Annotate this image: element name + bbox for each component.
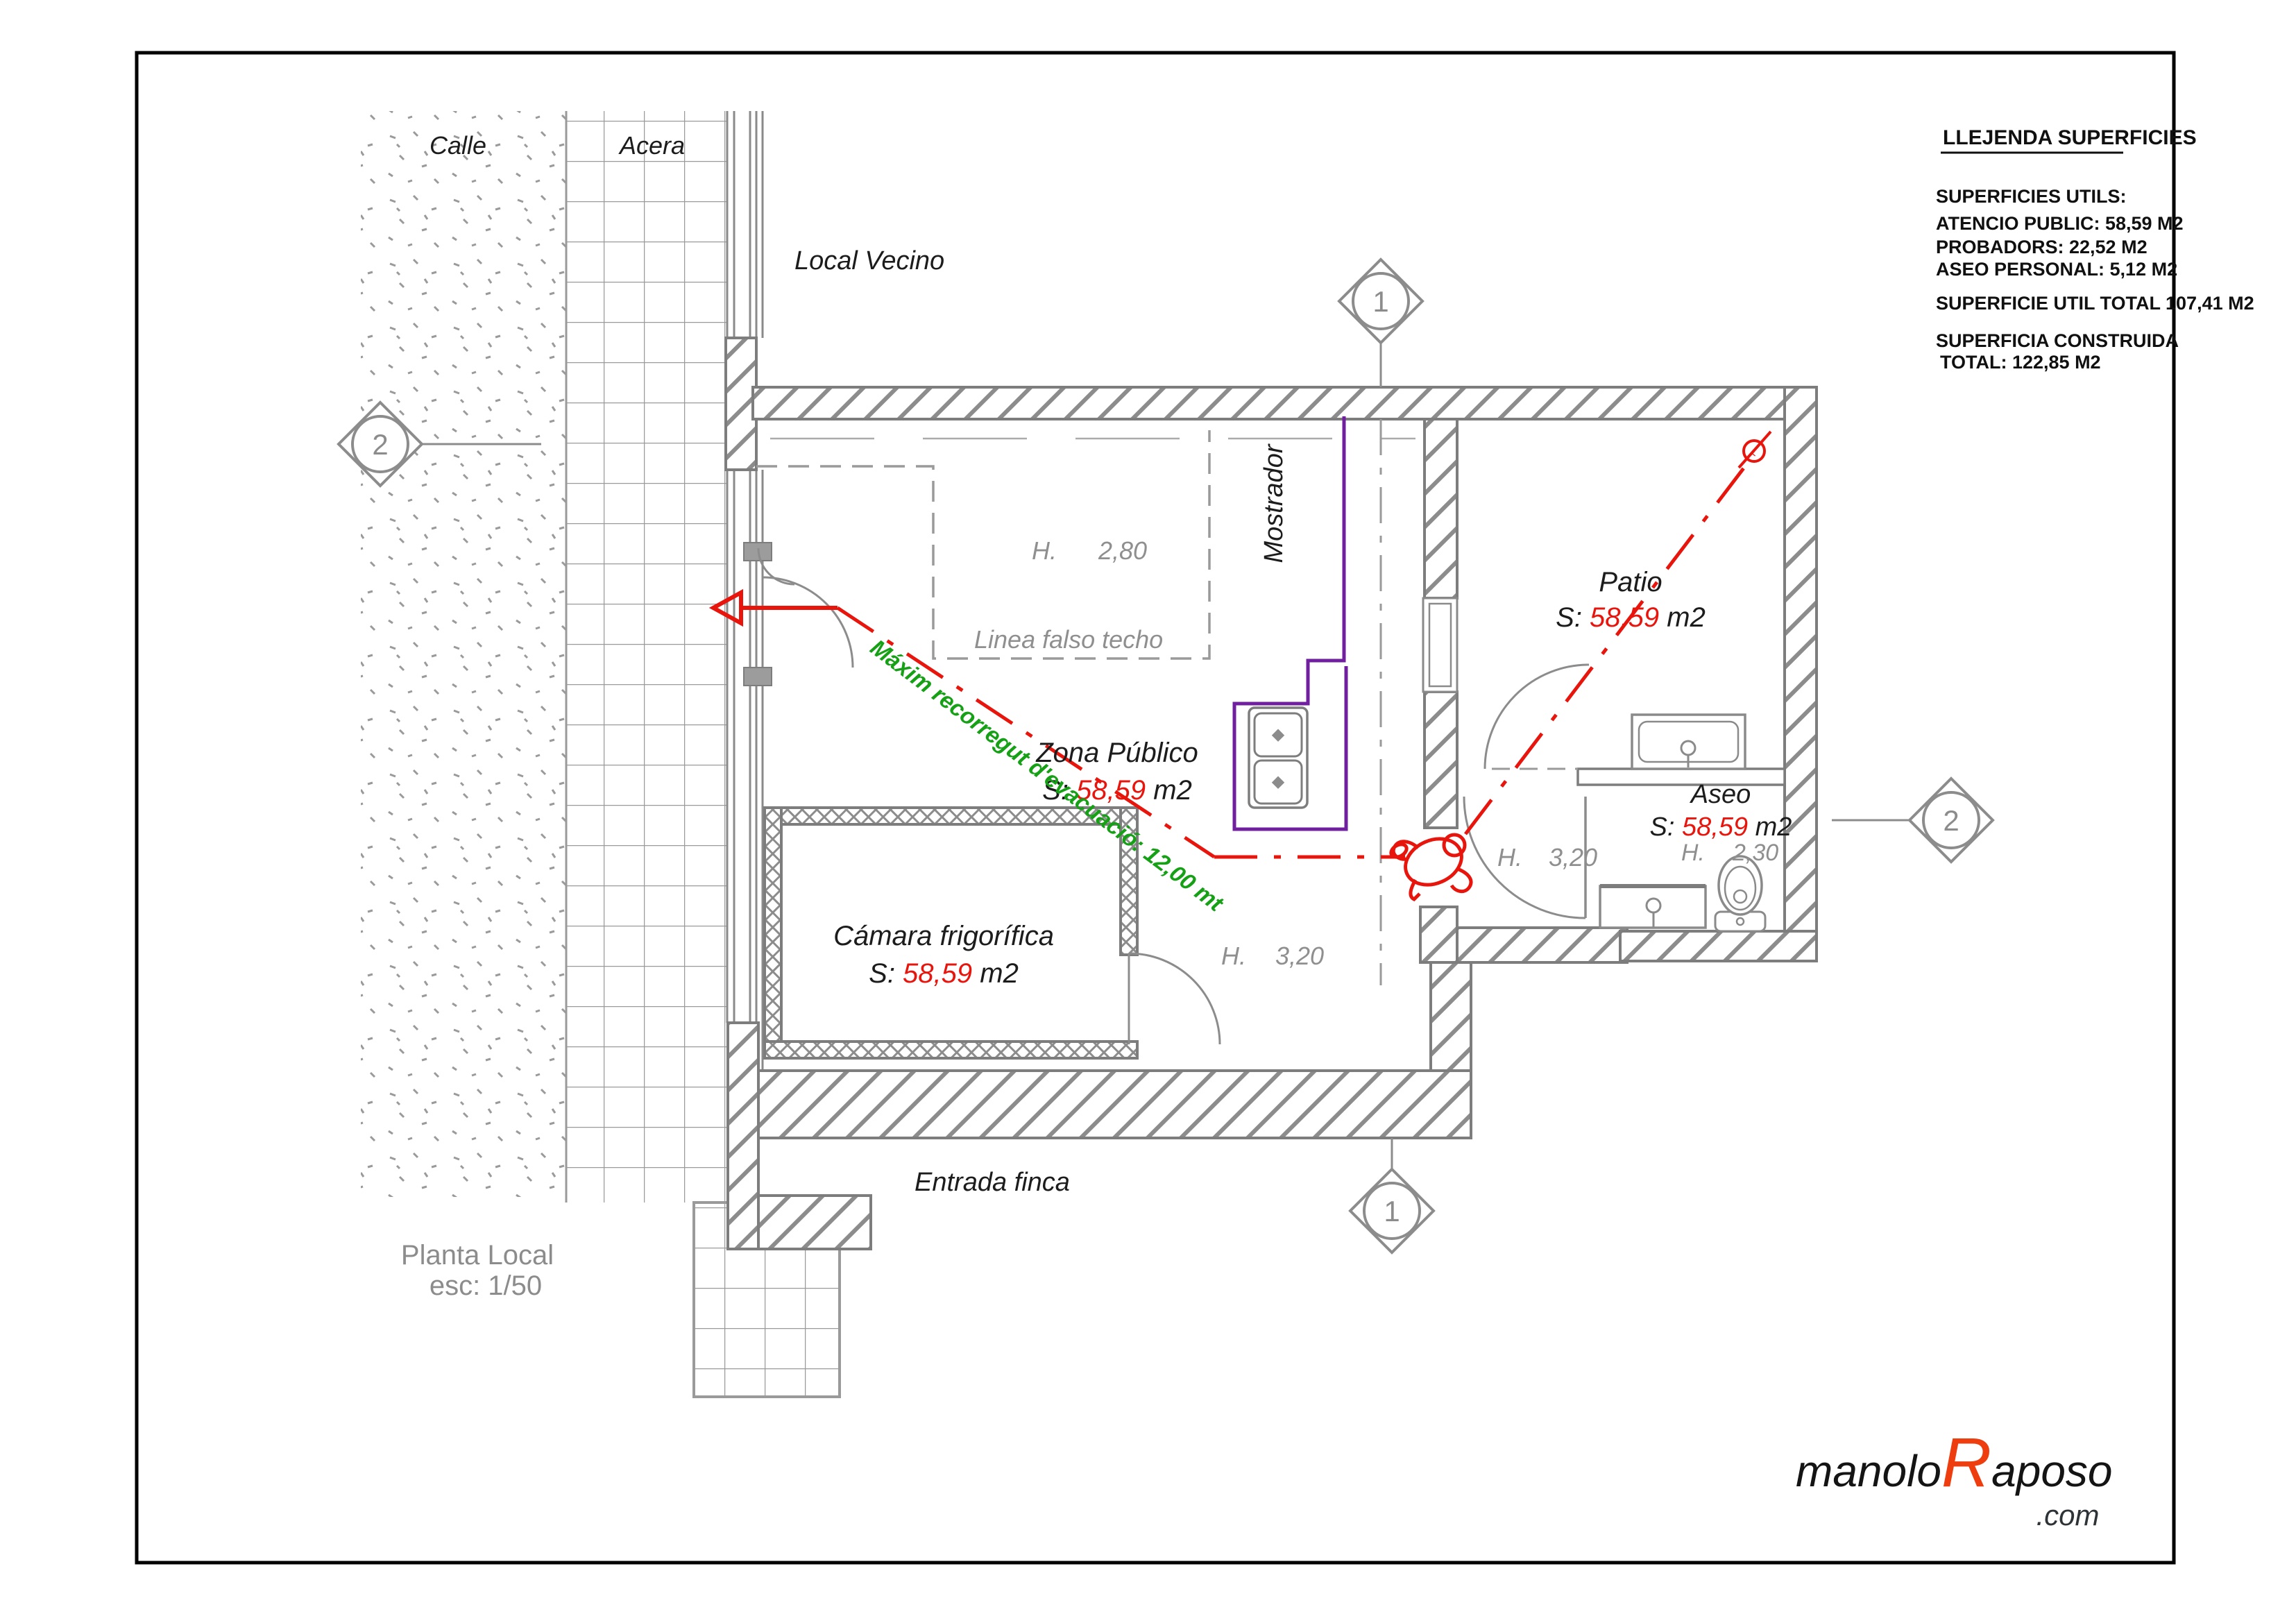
- section-marker-number: 2: [1943, 804, 1959, 837]
- legend-superficies-utils: SUPERFICIES UTILS:: [1936, 186, 2127, 207]
- section-marker-number: 1: [1372, 285, 1388, 318]
- room-area-aseo: S: 58,59 m2: [1650, 813, 1792, 842]
- door-hinge-block: [744, 668, 772, 686]
- label-height-falso-techo: H.: [1032, 536, 1057, 565]
- aseo-top-wall: [1578, 769, 1785, 785]
- section-marker-number: 2: [372, 428, 388, 461]
- area-prefix: S:: [869, 958, 903, 989]
- label-height-pasillo: H.: [1497, 843, 1522, 872]
- wall-shop-bottom: [758, 1071, 1471, 1138]
- label-height-zona: H.: [1221, 942, 1246, 970]
- room-name-patio: Patio: [1599, 567, 1662, 597]
- room-area-camara: S: 58,59 m2: [869, 958, 1019, 989]
- legend-aseo-personal: ASEO PERSONAL: 5,12 M2: [1936, 259, 2177, 280]
- wall-corridor-mid: [1425, 692, 1457, 828]
- label-local-vecino: Local Vecino: [794, 246, 944, 275]
- room-name-zona-publico: Zona Público: [1035, 738, 1198, 768]
- area-value: 58,59: [1682, 813, 1748, 842]
- value-height-aseo: 2,30: [1732, 840, 1778, 866]
- legend-title: LLEJENDA SUPERFICIES: [1943, 126, 2197, 149]
- plan-title: Planta Local: [401, 1240, 554, 1271]
- plan-scale: esc: 1/50: [430, 1271, 542, 1301]
- value-height-zona: 3,20: [1275, 942, 1324, 970]
- patio-window: [1423, 598, 1457, 692]
- label-linea-falso-techo: Linea falso techo: [974, 625, 1163, 654]
- aseo-counter: [1600, 886, 1706, 928]
- room-area-patio: S: 58,59 m2: [1556, 602, 1706, 633]
- floor-plan-page: 1 1 2 2 Calle Acera Local Vecino H. 2,80…: [0, 0, 2296, 1623]
- legend-superficie-util-total: SUPERFICIE UTIL TOTAL 107,41 M2: [1936, 293, 2254, 314]
- label-height-aseo: H.: [1681, 840, 1705, 866]
- area-value: 58,59: [1590, 602, 1659, 633]
- area-unit: m2: [1146, 775, 1192, 806]
- legend-total: TOTAL: 122,85 M2: [1940, 352, 2101, 373]
- sidewalk-tiles: [566, 111, 727, 1203]
- sink-fixture: [1249, 708, 1307, 808]
- area-prefix: S:: [1650, 813, 1682, 842]
- logo-part-aposo: aposo: [1991, 1446, 2112, 1496]
- area-value: 58,59: [903, 958, 972, 989]
- wall-corridor-upper: [1425, 419, 1457, 598]
- area-unit: m2: [972, 958, 1019, 989]
- label-mostrador: Mostrador: [1259, 443, 1289, 563]
- wall-entrance-stub: [758, 1196, 871, 1249]
- wall-passage-bottom: [1457, 928, 1627, 962]
- legend-atencio-public: ATENCIO PUBLIC: 58,59 M2: [1936, 213, 2184, 234]
- wall-entrance-left: [728, 1023, 758, 1249]
- wall-step: [1431, 962, 1471, 1071]
- area-prefix: S:: [1556, 602, 1590, 633]
- legend-probadors: PROBADORS: 22,52 M2: [1936, 237, 2148, 257]
- label-acera: Acera: [618, 131, 685, 160]
- area-unit: m2: [1748, 813, 1792, 842]
- value-height-pasillo: 3,20: [1549, 843, 1597, 872]
- toilet-fixture: [1715, 856, 1765, 931]
- room-name-aseo: Aseo: [1690, 780, 1751, 809]
- wall-top: [753, 387, 1817, 419]
- floor-plan-canvas: 1 1 2 2 Calle Acera Local Vecino H. 2,80…: [0, 0, 2296, 1623]
- section-marker-number: 1: [1384, 1195, 1400, 1227]
- logo-part-r: R: [1941, 1424, 1991, 1502]
- logo-part-manolo: manolo: [1796, 1446, 1941, 1496]
- value-height-falso-techo: 2,80: [1098, 536, 1147, 565]
- legend-superficia-construida: SUPERFICIA CONSTRUIDA: [1936, 330, 2179, 351]
- area-unit: m2: [1659, 602, 1706, 633]
- room-name-camara: Cámara frigorífica: [833, 921, 1054, 951]
- wall-right: [1785, 387, 1817, 961]
- street-texture: [361, 111, 566, 1197]
- logo-tld: .com: [2036, 1499, 2099, 1531]
- label-calle: Calle: [430, 131, 486, 160]
- wall-aseo-bottom: [1620, 931, 1817, 961]
- washbasin-fixture: [1632, 715, 1745, 769]
- label-entrada-finca: Entrada finca: [915, 1168, 1070, 1197]
- wall-corridor-stub: [1420, 907, 1457, 962]
